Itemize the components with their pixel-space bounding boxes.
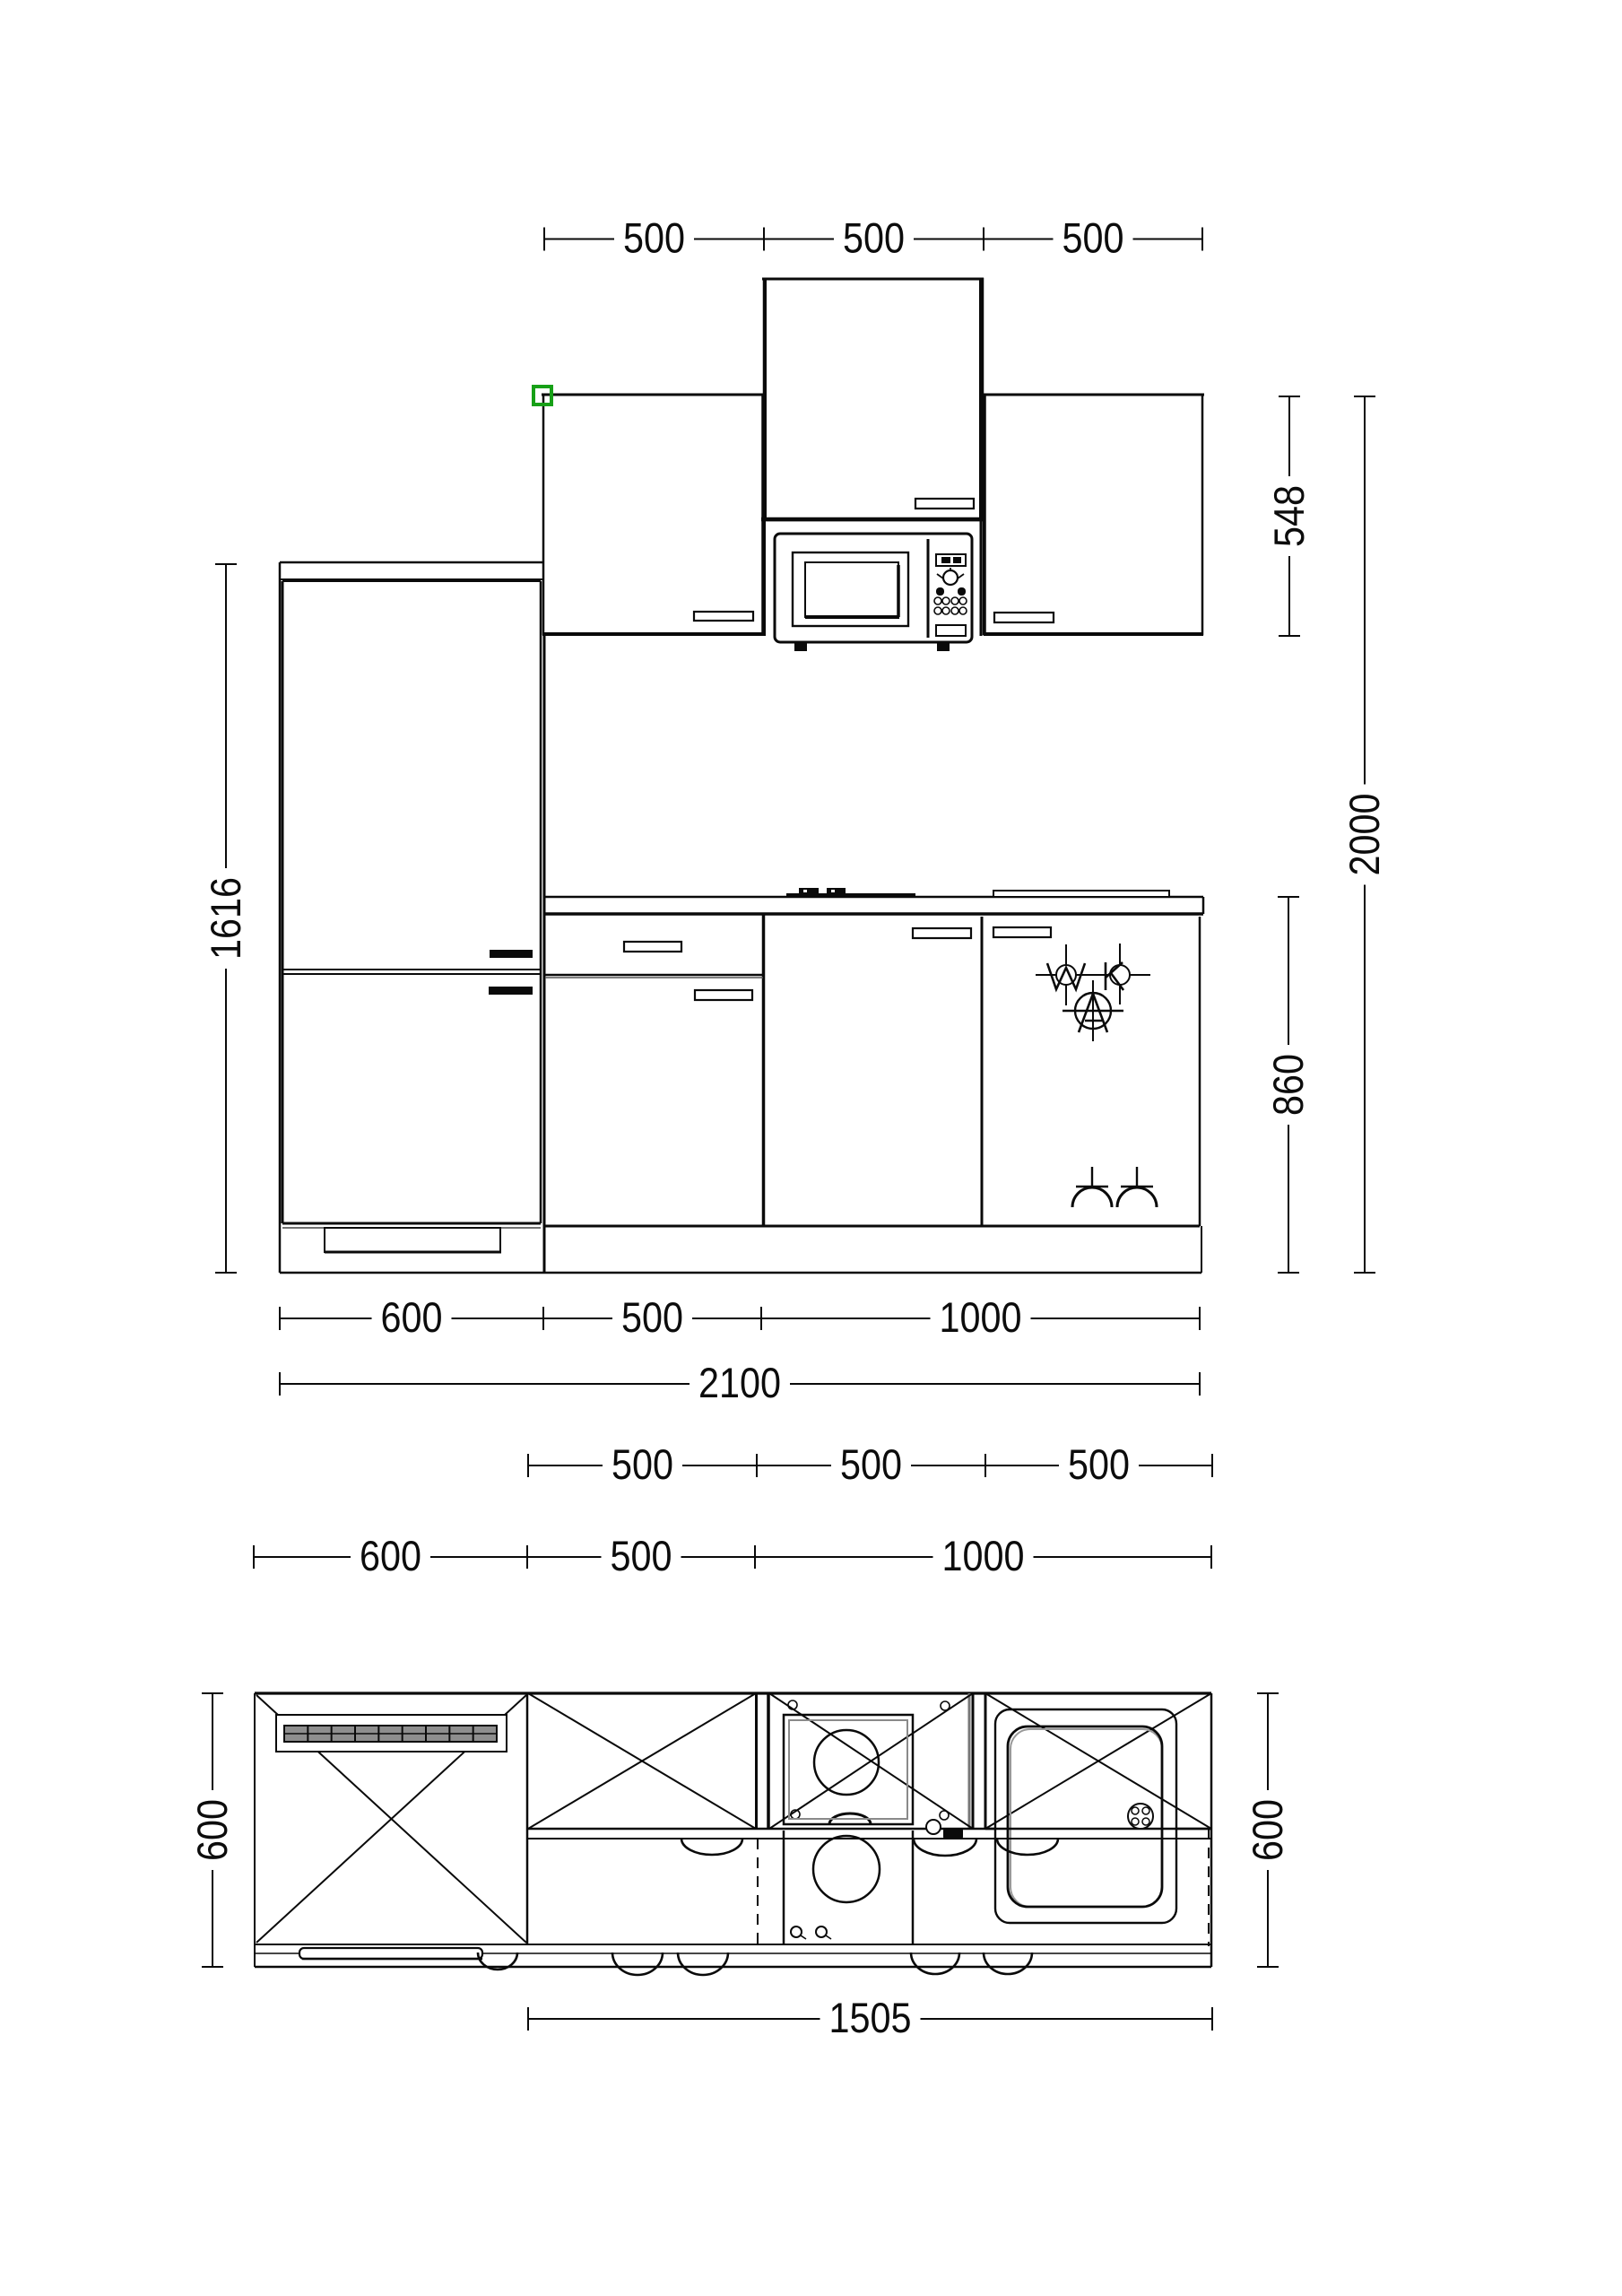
- svg-text:860: 860: [1264, 1054, 1312, 1116]
- svg-text:1505: 1505: [829, 1994, 912, 2041]
- svg-text:600: 600: [381, 1293, 443, 1341]
- svg-text:1000: 1000: [942, 1532, 1025, 1579]
- svg-text:1616: 1616: [202, 877, 249, 960]
- svg-text:2100: 2100: [698, 1359, 781, 1406]
- svg-text:548: 548: [1265, 485, 1313, 547]
- svg-text:500: 500: [843, 214, 905, 262]
- svg-text:600: 600: [188, 1799, 236, 1861]
- svg-text:500: 500: [623, 214, 685, 262]
- svg-text:500: 500: [621, 1293, 683, 1341]
- svg-text:500: 500: [612, 1440, 673, 1488]
- svg-text:600: 600: [1244, 1799, 1291, 1861]
- svg-text:500: 500: [611, 1532, 672, 1579]
- svg-text:500: 500: [1068, 1440, 1130, 1488]
- svg-text:600: 600: [360, 1532, 421, 1579]
- svg-text:2000: 2000: [1340, 794, 1388, 876]
- svg-text:1000: 1000: [940, 1293, 1022, 1341]
- svg-text:500: 500: [1063, 214, 1124, 262]
- svg-text:500: 500: [840, 1440, 902, 1488]
